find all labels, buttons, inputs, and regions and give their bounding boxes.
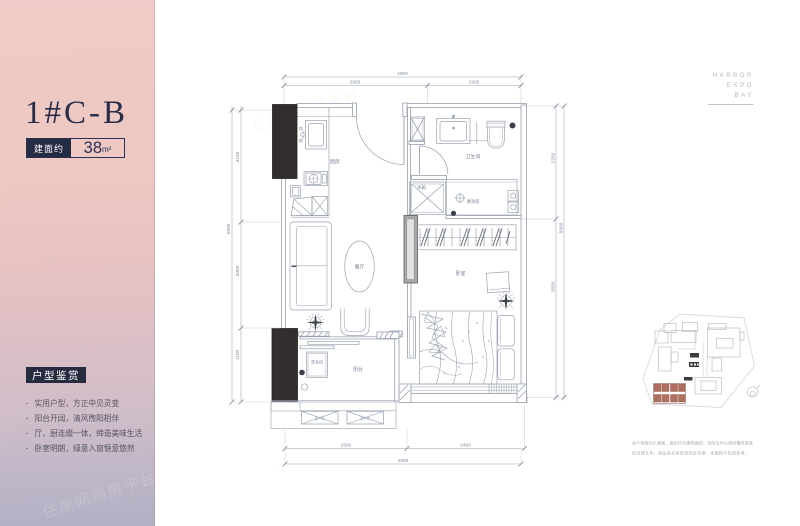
svg-text:2965: 2965 [350,80,361,86]
svg-text:1935: 1935 [469,80,480,86]
svg-text:5900: 5900 [226,223,232,234]
svg-text:卫生间: 卫生间 [466,154,481,161]
svg-text:3150: 3150 [235,151,241,162]
svg-text:的法律文件、商品房买卖合同约定为准，本图所示仅供参考。: 的法律文件、商品房买卖合同约定为准，本图所示仅供参考。 [632,450,749,456]
svg-text:淋浴房: 淋浴房 [466,198,480,205]
svg-text:洗衣机: 洗衣机 [311,359,323,365]
svg-text:本户型图为示意图，面积均为建筑面积，实际交付以政府最终批准: 本户型图为示意图，面积均为建筑面积，实际交付以政府最终批准 [632,440,753,446]
svg-text:餐厅: 餐厅 [355,264,365,271]
svg-text:水箱: 水箱 [417,184,426,191]
svg-text:室外机: 室外机 [315,416,326,421]
svg-text:2500: 2500 [341,443,352,449]
svg-text:室外机: 室外机 [360,416,371,421]
svg-text:5900: 5900 [559,222,565,233]
svg-text:厨房: 厨房 [330,159,340,166]
svg-text:3050: 3050 [235,265,241,276]
svg-text:EXPO: EXPO [727,83,754,89]
svg-text:2450: 2450 [460,443,471,449]
svg-text:HARBOR: HARBOR [713,73,754,79]
svg-text:4900: 4900 [397,71,408,77]
svg-text:1100: 1100 [235,350,241,361]
svg-text:4900: 4900 [398,458,409,464]
svg-text:卧室: 卧室 [456,270,466,277]
svg-text:2250: 2250 [551,152,557,163]
svg-text:阳台: 阳台 [353,366,363,373]
svg-text:2650: 2650 [551,281,557,292]
svg-text:BAY: BAY [735,93,754,99]
